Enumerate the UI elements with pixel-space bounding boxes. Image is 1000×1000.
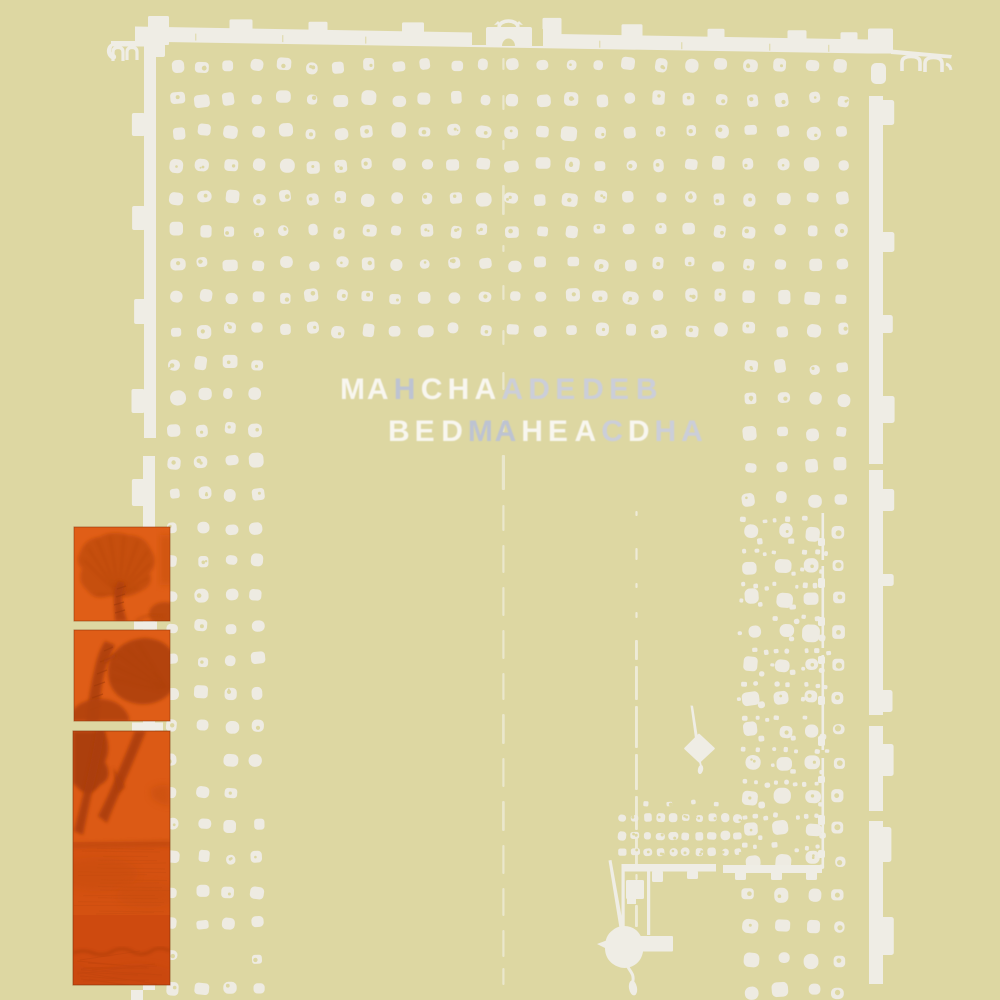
svg-text:D: D bbox=[582, 373, 604, 406]
svg-text:H: H bbox=[448, 373, 470, 406]
svg-text:A: A bbox=[367, 373, 389, 406]
svg-text:C: C bbox=[601, 415, 623, 448]
svg-text:A: A bbox=[501, 373, 523, 406]
svg-text:A: A bbox=[495, 415, 517, 448]
svg-text:M: M bbox=[340, 373, 365, 406]
svg-text:D: D bbox=[528, 373, 550, 406]
svg-text:B: B bbox=[388, 415, 410, 448]
svg-text:H: H bbox=[394, 373, 416, 406]
svg-text:E: E bbox=[548, 415, 568, 448]
svg-text:M: M bbox=[468, 415, 493, 448]
svg-text:D: D bbox=[628, 415, 650, 448]
svg-text:D: D bbox=[441, 415, 463, 448]
svg-text:A: A bbox=[575, 415, 597, 448]
svg-text:H: H bbox=[521, 415, 543, 448]
svg-text:A: A bbox=[475, 373, 497, 406]
svg-text:B: B bbox=[636, 373, 658, 406]
svg-text:C: C bbox=[421, 373, 443, 406]
svg-text:E: E bbox=[555, 373, 575, 406]
svg-text:A: A bbox=[681, 415, 703, 448]
svg-text:E: E bbox=[609, 373, 629, 406]
svg-text:E: E bbox=[415, 415, 435, 448]
svg-text:H: H bbox=[655, 415, 677, 448]
